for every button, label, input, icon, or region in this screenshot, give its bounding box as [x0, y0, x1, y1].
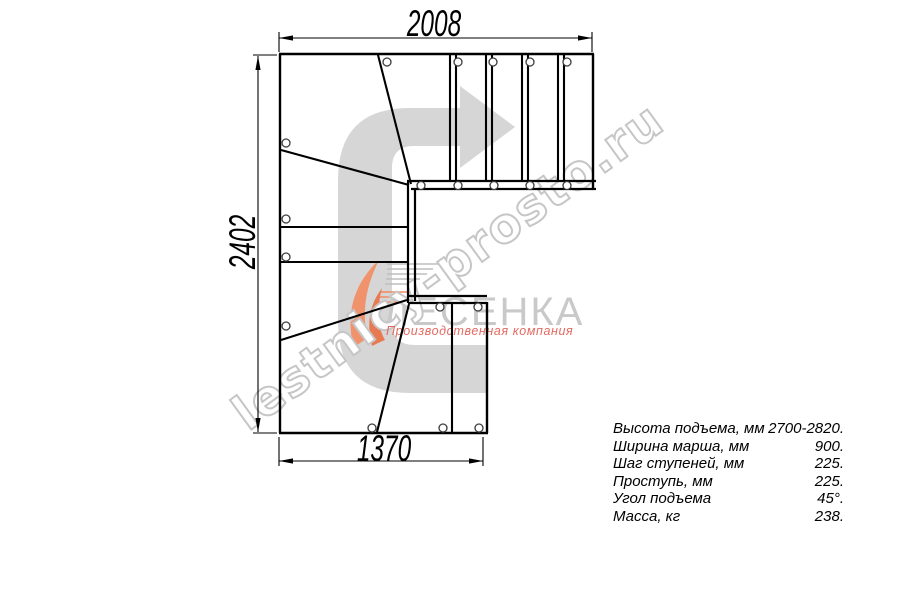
- spec-value: 45°.: [817, 490, 844, 508]
- tread-lines: [281, 55, 564, 432]
- dimension-lines: [253, 32, 592, 466]
- spec-value: 238.: [815, 508, 844, 526]
- plan-outline: [279, 54, 594, 433]
- spec-label: Высота подъема, мм: [613, 420, 765, 438]
- spec-label: Ширина марша, мм: [613, 438, 749, 456]
- spec-row-climb-angle: Угол подъема 45°.: [613, 490, 844, 508]
- spec-row-flight-width: Ширина марша, мм 900.: [613, 438, 844, 456]
- dimension-label-bottom-width: 1370: [331, 429, 437, 469]
- dimension-arrowheads: [255, 35, 592, 463]
- spec-value: 225.: [815, 473, 844, 491]
- staircase-drawing-page: { "dimensions": { "top": "2008", "left":…: [0, 0, 900, 600]
- spec-row-step-pitch: Шаг ступеней, мм 225.: [613, 455, 844, 473]
- spec-row-mass: Масса, кг 238.: [613, 508, 844, 526]
- spec-value: 225.: [815, 455, 844, 473]
- specs-table: Высота подъема, мм 2700-2820. Ширина мар…: [613, 420, 844, 525]
- winder-tread-lines: [281, 55, 411, 432]
- frame-double-lines: [407, 181, 596, 303]
- spec-row-tread-depth: Проступь, мм 225.: [613, 473, 844, 491]
- spec-row-lift-height: Высота подъема, мм 2700-2820.: [613, 420, 844, 438]
- spec-label: Шаг ступеней, мм: [613, 455, 744, 473]
- spec-label: Масса, кг: [613, 508, 680, 526]
- dimension-label-left-height: 2402: [223, 189, 263, 295]
- spec-value: 2700-2820.: [768, 420, 844, 438]
- spec-label: Проступь, мм: [613, 473, 713, 491]
- dimension-label-top-width: 2008: [381, 4, 487, 44]
- spec-label: Угол подъема: [613, 490, 711, 508]
- spec-value: 900.: [815, 438, 844, 456]
